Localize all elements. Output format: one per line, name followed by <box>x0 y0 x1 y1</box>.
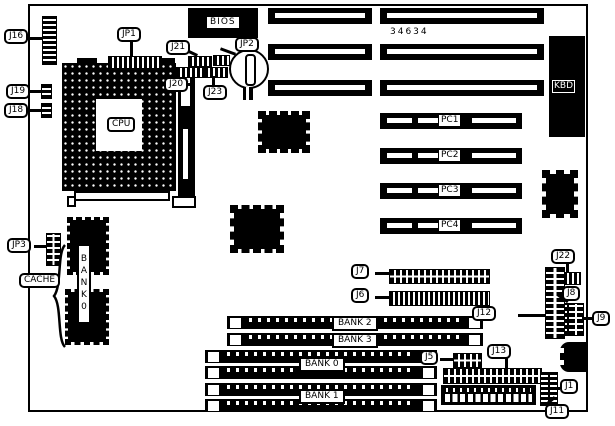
pci-slot-label: PC2 <box>438 149 461 162</box>
connector-j19 <box>41 84 52 99</box>
callout-j1: J1 <box>560 379 578 394</box>
jumper-jp1 <box>108 56 162 69</box>
callout-j18: J18 <box>4 103 28 118</box>
bios-label: BIOS <box>205 15 241 30</box>
bank0-label: BANK 0 <box>299 357 345 372</box>
pointer-j7 <box>375 272 389 275</box>
callout-j7: J7 <box>351 264 369 279</box>
pointer-j6 <box>375 296 389 299</box>
vrm-base <box>172 196 196 208</box>
pci-slot-pc1: PC1 <box>380 113 522 129</box>
pointer-j1 <box>548 387 560 390</box>
battery-stem <box>243 87 253 100</box>
connector-j12 <box>545 267 565 339</box>
callout-j8: J8 <box>562 286 580 301</box>
bank1-label: BANK 1 <box>299 389 345 404</box>
power-connector-pins <box>446 388 531 392</box>
isa-slot-segment <box>380 8 544 24</box>
callout-jp1: JP1 <box>117 27 141 42</box>
callout-j16: J16 <box>4 29 28 44</box>
callout-j20: J20 <box>164 77 188 92</box>
cpu-socket-lever-notch <box>67 196 76 207</box>
pointer-j13 <box>505 358 508 368</box>
pci-slot-label: PC4 <box>438 219 461 232</box>
pci-slot-label: PC3 <box>438 184 461 197</box>
battery-crystal <box>245 54 256 86</box>
pci-slot-pc2: PC2 <box>380 148 522 164</box>
cpu-socket: CPU <box>62 63 176 191</box>
pci-slot-pc3: PC3 <box>380 183 522 199</box>
pci-slot-label: PC1 <box>438 114 461 127</box>
bank2-label: BANK 2 <box>332 316 378 331</box>
callout-cache: CACHE <box>19 273 60 288</box>
connector-j21 <box>188 56 212 67</box>
connector-j23 <box>204 67 228 78</box>
isa-slot-segment <box>268 8 372 24</box>
part-number: 34634 <box>390 27 429 37</box>
jumper-jp2-target <box>213 55 230 66</box>
vrm-stripe <box>183 129 188 179</box>
callout-j9: J9 <box>592 311 610 326</box>
power-connector <box>441 385 536 405</box>
pci-slot-pc4: PC4 <box>380 218 522 234</box>
io-chip-qfp <box>542 170 578 218</box>
din-connector <box>560 342 587 372</box>
keyboard-connector: KBD <box>549 36 585 137</box>
callout-jp2: JP2 <box>235 37 259 52</box>
din-notch <box>560 360 564 365</box>
pointer-jp3 <box>34 245 46 248</box>
chipset-qfp <box>230 205 284 253</box>
kbd-label: KBD <box>552 80 575 93</box>
pointer-j18 <box>26 109 41 112</box>
pointer-jp1 <box>130 40 133 56</box>
motherboard-diagram: 34634 KBD PC1 PC2 PC3 PC4 BIOS CPU AV <box>0 0 615 426</box>
isa-slot-segment <box>268 44 372 60</box>
callout-j11: J11 <box>545 404 569 419</box>
connector-j5 <box>453 353 482 368</box>
callout-j12: J12 <box>472 306 496 321</box>
pointer-j12 <box>518 314 545 317</box>
chipset-qfp <box>258 111 310 153</box>
cpu-socket-lever <box>74 191 170 201</box>
callout-j21: J21 <box>166 40 190 55</box>
bios-chip: BIOS <box>188 8 258 38</box>
callout-j19: J19 <box>6 84 30 99</box>
connector-j16 <box>42 16 57 65</box>
connector-j6 <box>389 291 490 306</box>
cache-bank0-vertical-label: BANK0 <box>77 244 91 324</box>
din-notch <box>560 348 564 353</box>
callout-j6: J6 <box>351 288 369 303</box>
callout-j13: J13 <box>487 344 511 359</box>
isa-slot-segment <box>380 44 544 60</box>
cpu-label: CPU <box>107 117 135 132</box>
connector-j7 <box>389 269 490 284</box>
callout-j5: J5 <box>420 350 438 365</box>
cache-brace <box>52 244 66 348</box>
isa-slot-segment <box>268 80 372 96</box>
bank3-label: BANK 3 <box>332 333 378 348</box>
connector-j18 <box>41 103 52 118</box>
pointer-j16 <box>26 37 42 40</box>
connector-j13 <box>443 368 542 384</box>
pointer-j5 <box>440 358 453 361</box>
callout-jp3: JP3 <box>7 238 31 253</box>
isa-slot-segment <box>380 80 544 96</box>
simm-contacts <box>227 352 415 356</box>
power-connector-sockets <box>445 394 532 402</box>
callout-j23: J23 <box>203 85 227 100</box>
callout-j22: J22 <box>551 249 575 264</box>
